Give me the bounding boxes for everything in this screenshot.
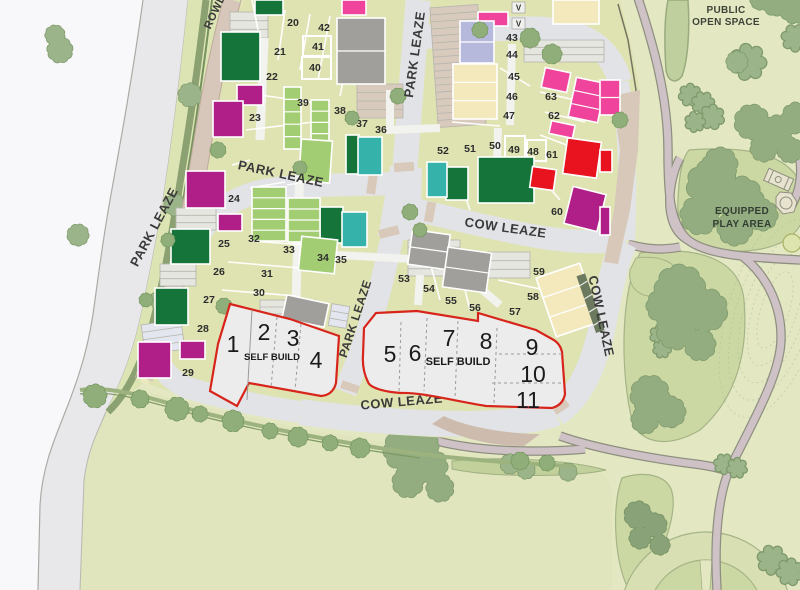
svg-text:29: 29	[182, 367, 194, 379]
svg-text:21: 21	[274, 46, 286, 58]
svg-text:10: 10	[520, 361, 546, 387]
svg-text:60: 60	[551, 206, 563, 218]
svg-text:38: 38	[334, 105, 346, 117]
svg-text:22: 22	[266, 71, 278, 83]
svg-text:SELF BUILD: SELF BUILD	[426, 356, 491, 368]
svg-text:SELF BUILD: SELF BUILD	[244, 352, 300, 363]
svg-text:9: 9	[526, 334, 539, 360]
svg-text:23: 23	[249, 112, 261, 124]
svg-text:53: 53	[398, 273, 410, 285]
svg-text:48: 48	[527, 146, 539, 158]
svg-text:PUBLIC: PUBLIC	[706, 5, 745, 16]
svg-text:40: 40	[309, 62, 321, 74]
svg-text:PLAY AREA: PLAY AREA	[712, 219, 771, 230]
svg-text:33: 33	[283, 244, 295, 256]
svg-text:5: 5	[384, 341, 397, 367]
svg-text:42: 42	[318, 22, 330, 34]
svg-text:8: 8	[480, 328, 493, 354]
svg-text:50: 50	[489, 140, 501, 152]
svg-text:51: 51	[464, 143, 476, 155]
svg-text:30: 30	[253, 287, 265, 299]
svg-text:26: 26	[213, 266, 225, 278]
svg-text:36: 36	[375, 124, 387, 136]
svg-text:39: 39	[297, 97, 309, 109]
svg-text:45: 45	[508, 71, 520, 83]
svg-text:20: 20	[287, 17, 299, 29]
svg-text:59: 59	[533, 266, 545, 278]
svg-text:27: 27	[203, 294, 215, 306]
svg-text:28: 28	[197, 323, 209, 335]
svg-text:43: 43	[506, 32, 518, 44]
svg-text:OPEN SPACE: OPEN SPACE	[692, 17, 760, 28]
svg-text:62: 62	[548, 110, 560, 122]
svg-text:V: V	[516, 4, 522, 13]
svg-text:6: 6	[409, 340, 422, 366]
svg-text:49: 49	[508, 144, 520, 156]
svg-text:EQUIPPED: EQUIPPED	[715, 206, 769, 217]
svg-text:46: 46	[506, 91, 518, 103]
svg-text:57: 57	[509, 306, 521, 318]
svg-text:11: 11	[516, 387, 540, 413]
svg-text:44: 44	[506, 49, 518, 61]
svg-text:35: 35	[335, 254, 347, 266]
svg-text:3: 3	[287, 325, 300, 351]
svg-text:63: 63	[545, 91, 557, 103]
svg-text:54: 54	[423, 283, 435, 295]
svg-text:4: 4	[310, 347, 323, 373]
svg-text:25: 25	[218, 238, 230, 250]
svg-text:7: 7	[443, 325, 456, 351]
svg-text:52: 52	[437, 145, 449, 157]
svg-text:34: 34	[317, 252, 329, 264]
svg-text:V: V	[516, 20, 522, 29]
svg-text:31: 31	[261, 268, 273, 280]
svg-text:55: 55	[445, 295, 457, 307]
svg-text:56: 56	[469, 302, 481, 314]
svg-text:24: 24	[228, 193, 240, 205]
svg-text:1: 1	[227, 331, 240, 357]
svg-text:2: 2	[258, 319, 271, 345]
svg-text:58: 58	[527, 291, 539, 303]
svg-text:41: 41	[312, 41, 324, 53]
svg-text:32: 32	[248, 233, 260, 245]
svg-text:47: 47	[503, 110, 515, 122]
svg-text:61: 61	[546, 149, 558, 161]
